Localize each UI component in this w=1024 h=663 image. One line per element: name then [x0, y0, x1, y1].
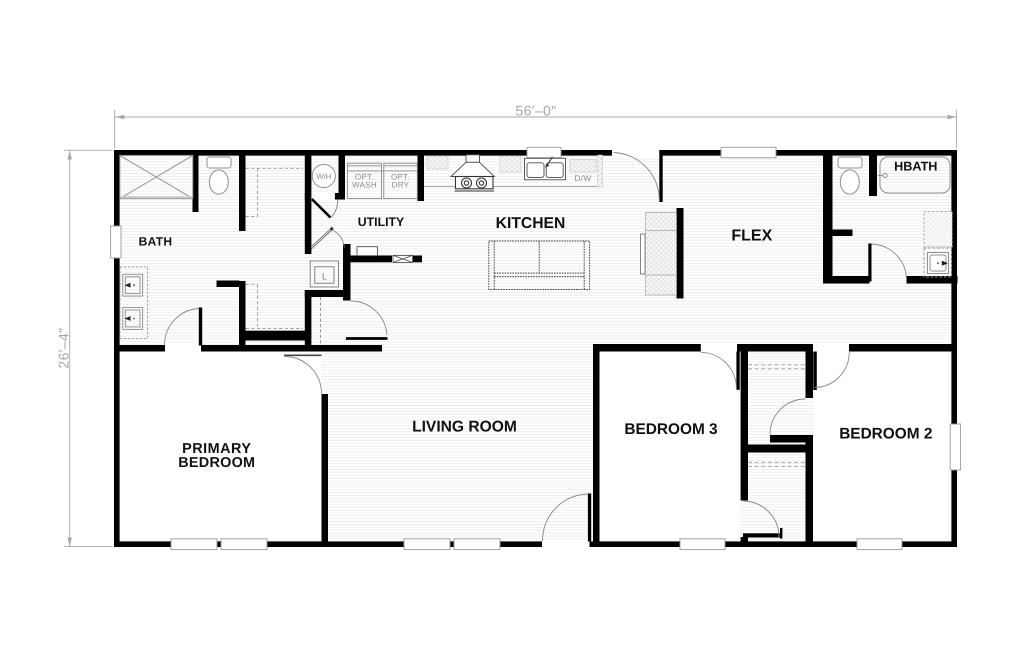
- svg-text:FLEX: FLEX: [731, 228, 772, 245]
- svg-text:56′–0″: 56′–0″: [515, 103, 556, 119]
- svg-text:WASH: WASH: [352, 181, 377, 190]
- svg-text:26′–4″: 26′–4″: [56, 327, 72, 368]
- svg-text:W/H: W/H: [316, 172, 331, 181]
- svg-text:DRY: DRY: [392, 181, 410, 190]
- svg-text:HBATH: HBATH: [894, 160, 937, 174]
- svg-text:KITCHEN: KITCHEN: [496, 215, 566, 232]
- svg-text:LIVING ROOM: LIVING ROOM: [412, 418, 517, 435]
- svg-text:BEDROOM 3: BEDROOM 3: [624, 421, 717, 438]
- svg-text:D/W: D/W: [574, 173, 591, 183]
- svg-text:BEDROOM 2: BEDROOM 2: [839, 425, 932, 442]
- svg-text:UTILITY: UTILITY: [358, 215, 404, 229]
- svg-text:BEDROOM: BEDROOM: [178, 455, 255, 471]
- svg-text:L: L: [322, 272, 327, 282]
- svg-text:BATH: BATH: [139, 235, 173, 249]
